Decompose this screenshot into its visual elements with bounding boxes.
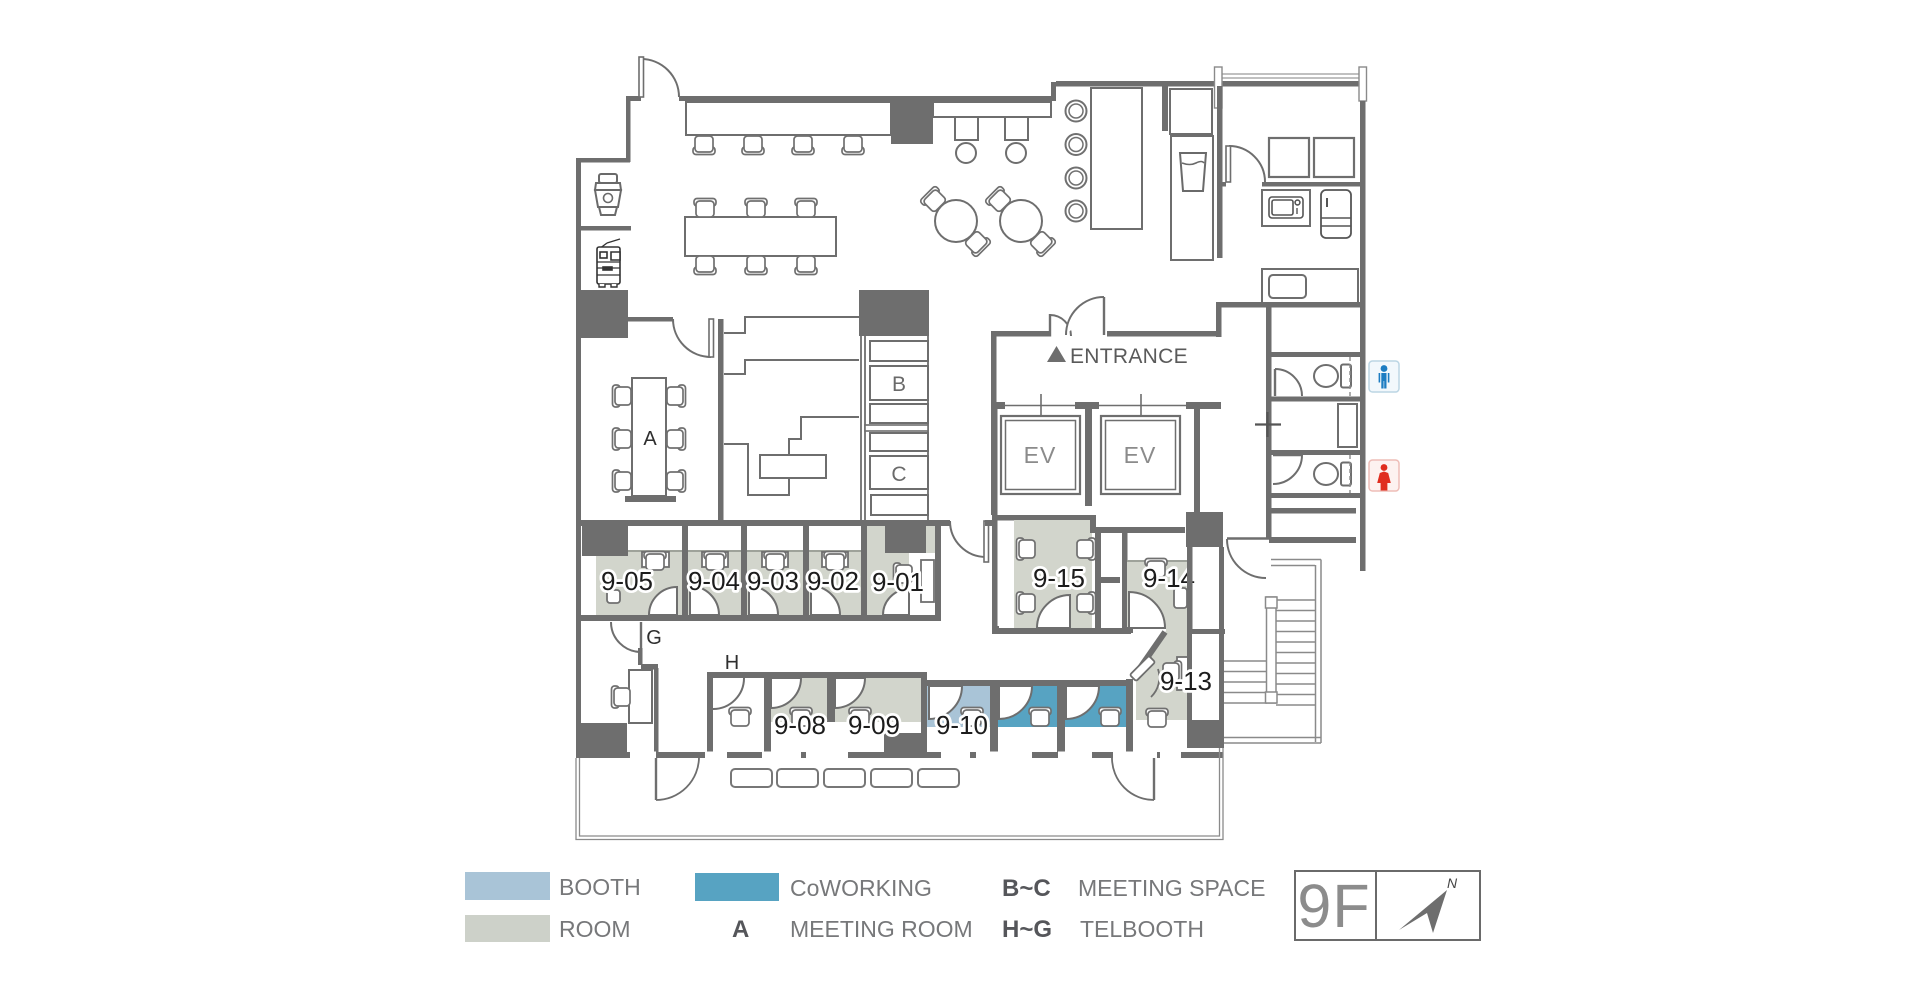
svg-text:9-03: 9-03: [747, 566, 799, 596]
svg-text:C: C: [891, 463, 906, 486]
svg-text:TELBOOTH: TELBOOTH: [1080, 916, 1204, 942]
svg-text:9F: 9F: [1297, 872, 1370, 940]
svg-text:EV: EV: [1024, 442, 1057, 468]
svg-text:N: N: [1447, 875, 1458, 891]
svg-text:G: G: [646, 627, 662, 649]
svg-text:H~G: H~G: [1002, 916, 1052, 943]
svg-text:A: A: [732, 916, 749, 943]
svg-text:9-01: 9-01: [872, 567, 924, 597]
svg-text:MEETING SPACE: MEETING SPACE: [1078, 875, 1265, 901]
svg-text:BOOTH: BOOTH: [559, 874, 641, 900]
svg-text:ROOM: ROOM: [559, 916, 631, 942]
svg-text:9-10: 9-10: [936, 710, 988, 740]
svg-text:B: B: [892, 373, 906, 396]
svg-text:9-04: 9-04: [688, 566, 740, 596]
svg-text:9-13: 9-13: [1160, 666, 1212, 696]
svg-text:9-08: 9-08: [774, 710, 826, 740]
svg-text:A: A: [643, 428, 657, 450]
svg-text:9-09: 9-09: [848, 710, 900, 740]
svg-text:H: H: [725, 652, 739, 674]
svg-text:B~C: B~C: [1002, 875, 1051, 902]
svg-text:9-15: 9-15: [1033, 563, 1085, 593]
svg-text:9-02: 9-02: [807, 566, 859, 596]
svg-text:CoWORKING: CoWORKING: [790, 875, 932, 901]
svg-text:ENTRANCE: ENTRANCE: [1070, 345, 1188, 368]
svg-text:MEETING ROOM: MEETING ROOM: [790, 916, 973, 942]
svg-text:9-05: 9-05: [601, 566, 653, 596]
svg-text:EV: EV: [1124, 442, 1157, 468]
